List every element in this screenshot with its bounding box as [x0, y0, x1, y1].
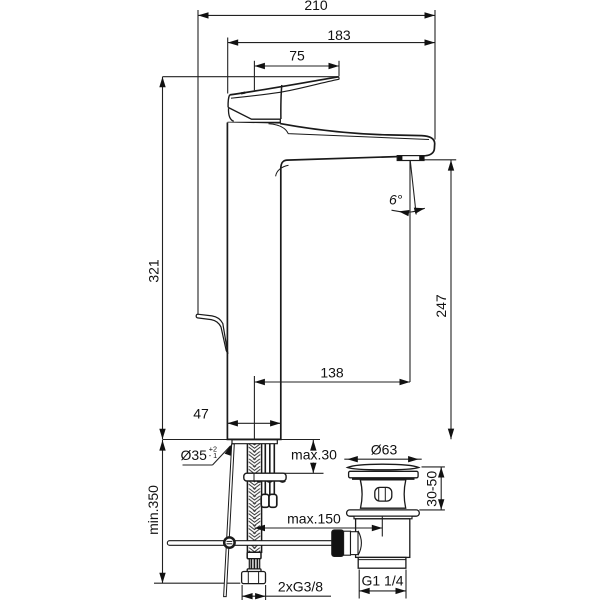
svg-text:max.30: max.30: [291, 447, 337, 463]
svg-text:138: 138: [320, 365, 344, 381]
svg-text:- 1: - 1: [209, 451, 217, 460]
svg-text:210: 210: [304, 0, 328, 13]
svg-text:Ø63: Ø63: [371, 442, 398, 458]
svg-text:2xG3/8: 2xG3/8: [278, 578, 323, 594]
svg-text:47: 47: [193, 406, 209, 422]
svg-text:G1 1/4: G1 1/4: [361, 572, 403, 588]
svg-text:min.350: min.350: [145, 485, 161, 535]
svg-text:6°: 6°: [389, 192, 403, 208]
svg-text:321: 321: [146, 259, 162, 283]
svg-text:Ø35: Ø35: [181, 447, 208, 463]
svg-text:max.150: max.150: [287, 511, 341, 527]
svg-text:30-50: 30-50: [424, 471, 440, 507]
svg-text:247: 247: [433, 294, 449, 318]
svg-text:75: 75: [289, 48, 305, 64]
svg-text:183: 183: [327, 27, 351, 43]
